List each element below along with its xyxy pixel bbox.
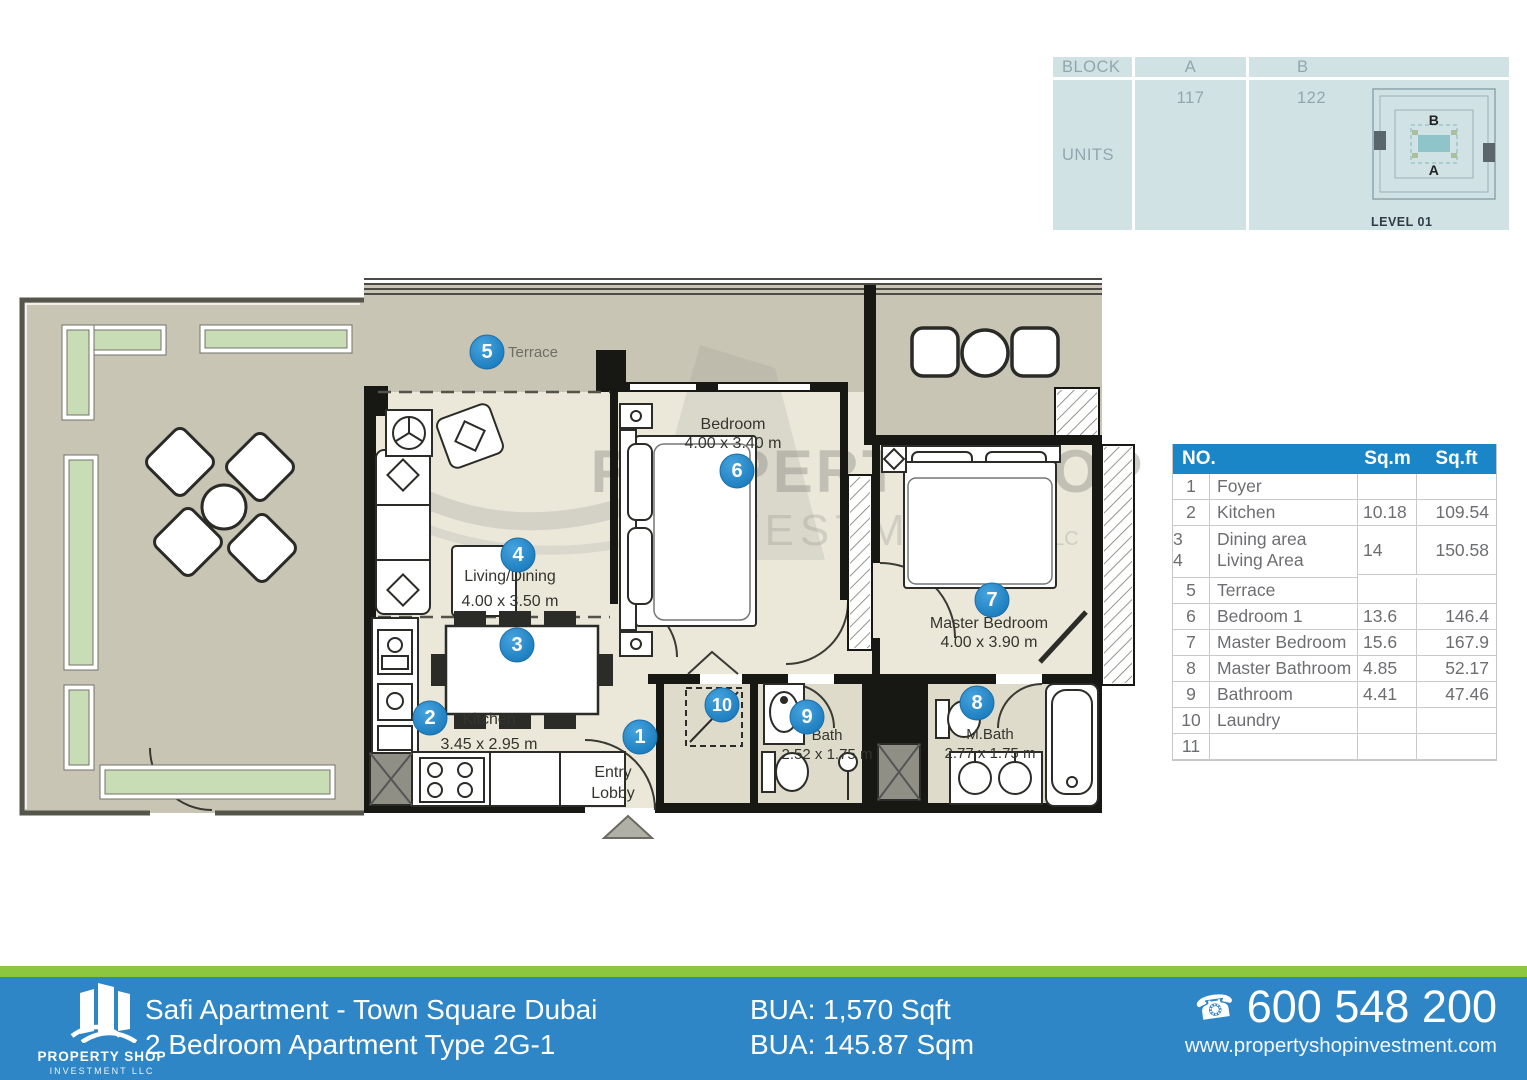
room-label: 4.00 x 3.90 m <box>941 634 1038 651</box>
property-shop-logo-icon <box>54 979 150 1043</box>
bua-sqft: BUA: 1,570 Sqft <box>750 992 974 1027</box>
table-cell <box>1417 578 1496 604</box>
miniplan-unit-left <box>1374 131 1386 150</box>
contact-block: ☎ 600 548 200 www.propertyshopinvestment… <box>1185 981 1497 1058</box>
terrace-table <box>202 485 246 529</box>
area-table-rows: 1Foyer2Kitchen10.18109.5434Dining areaLi… <box>1173 474 1496 760</box>
phone-icon: ☎ <box>1192 985 1237 1028</box>
table-cell: 1 <box>1173 474 1210 500</box>
room-label: 3.45 x 2.95 m <box>441 736 538 753</box>
table-cell: Bedroom 1 <box>1210 604 1358 630</box>
table-cell <box>1417 734 1496 760</box>
room-label: 4.00 x 3.40 m <box>685 435 782 452</box>
table-cell: Foyer <box>1210 474 1358 500</box>
room-label: Terrace <box>508 344 558 361</box>
table-cell: 8 <box>1173 656 1210 682</box>
room-label: Entry <box>594 764 631 781</box>
room-label: Bedroom <box>701 416 766 433</box>
units-table: BLOCK A B UNITS 117 122 B A LEVEL 01 <box>1053 57 1509 230</box>
table-cell: Master Bathroom <box>1210 656 1358 682</box>
corridor-closet <box>848 475 872 650</box>
table-cell: 10 <box>1173 708 1210 734</box>
kitchen-furniture <box>370 612 625 806</box>
table-cell: Terrace <box>1210 578 1358 604</box>
units-col-a: A <box>1135 57 1249 80</box>
table-row: 9Bathroom4.4147.46 <box>1173 682 1496 708</box>
bua-info: BUA: 1,570 Sqft BUA: 145.87 Sqm <box>750 992 974 1062</box>
table-cell: 109.54 <box>1417 500 1496 526</box>
miniplan-pool <box>1418 135 1450 152</box>
level-miniplan: B A <box>1365 83 1505 211</box>
svg-text:8: 8 <box>971 692 982 714</box>
table-cell: 5 <box>1173 578 1210 604</box>
phone-number: ☎ 600 548 200 <box>1185 981 1497 1033</box>
room-marker-9: 9 <box>790 700 824 734</box>
table-cell: 4.85 <box>1358 656 1417 682</box>
table-row: 2Kitchen10.18109.54 <box>1173 500 1496 526</box>
table-cell: 47.46 <box>1417 682 1496 708</box>
units-col-block: BLOCK <box>1053 57 1135 80</box>
table-cell: 15.6 <box>1358 630 1417 656</box>
table-cell: 2 <box>1173 500 1210 526</box>
table-cell: 52.17 <box>1417 656 1496 682</box>
table-cell: 10.18 <box>1358 500 1417 526</box>
table-row: 6Bedroom 113.6146.4 <box>1173 604 1496 630</box>
table-cell: 7 <box>1173 630 1210 656</box>
room-marker-6: 6 <box>720 454 754 488</box>
svg-text:10: 10 <box>712 695 732 715</box>
units-value-a: 117 <box>1135 80 1249 230</box>
room-label: 4.00 x 3.50 m <box>462 593 559 610</box>
master-wardrobe <box>1102 445 1134 685</box>
table-cell <box>1358 734 1417 760</box>
room-label: Master Bedroom <box>930 615 1048 632</box>
table-cell <box>1358 578 1417 604</box>
room-label: Kitchen <box>462 711 515 728</box>
room-marker-2: 2 <box>413 701 447 735</box>
table-cell <box>1358 708 1417 734</box>
room-label: Lobby <box>591 785 635 802</box>
listing-title: Safi Apartment - Town Square Dubai 2 Bed… <box>145 992 597 1062</box>
room-marker-10: 10 <box>705 688 739 722</box>
table-cell <box>1417 708 1496 734</box>
table-cell: Kitchen <box>1210 500 1358 526</box>
alcove-furniture-group <box>912 328 1058 376</box>
room-label: 2.77 x 1.75 m <box>945 745 1036 762</box>
table-row: 5Terrace <box>1173 578 1496 604</box>
svg-text:6: 6 <box>731 460 742 482</box>
table-cell <box>1358 474 1417 500</box>
table-row: 8Master Bathroom4.8552.17 <box>1173 656 1496 682</box>
table-cell: 11 <box>1173 734 1210 760</box>
brand-subname: INVESTMENT LLC <box>32 1066 172 1076</box>
table-cell: 4.41 <box>1358 682 1417 708</box>
table-row: 1Foyer <box>1173 474 1496 500</box>
room-marker-1: 1 <box>623 720 657 754</box>
units-row-label: UNITS <box>1053 80 1135 230</box>
website-link[interactable]: www.propertyshopinvestment.com <box>1185 1034 1497 1058</box>
table-cell: 150.58 <box>1417 526 1496 575</box>
table-cell: 13.6 <box>1358 604 1417 630</box>
table-cell: 9 <box>1173 682 1210 708</box>
svg-text:5: 5 <box>481 341 492 363</box>
listing-title-line1: Safi Apartment - Town Square Dubai <box>145 992 597 1027</box>
header-sqft: Sq.ft <box>1417 448 1496 470</box>
entry-arrow <box>604 816 652 838</box>
table-row: 34Dining areaLiving Area14150.58 <box>1173 526 1496 578</box>
room-marker-3: 3 <box>500 628 534 662</box>
flyer-page: { "units_table": { "col_block": "BLOCK",… <box>0 0 1527 1080</box>
phone-number-text: 600 548 200 <box>1247 981 1497 1033</box>
svg-text:3: 3 <box>511 634 522 656</box>
room-marker-5: 5 <box>470 335 504 369</box>
miniplan-unit-right <box>1483 143 1495 162</box>
table-cell <box>1210 734 1358 760</box>
header-sqm: Sq.m <box>1358 448 1417 470</box>
miniplan-block-a: A <box>1429 162 1440 178</box>
svg-text:2: 2 <box>424 707 435 729</box>
header-no: NO. <box>1173 448 1358 470</box>
footer-green-strip <box>0 966 1527 977</box>
room-label: 2.52 x 1.75 m <box>782 746 873 763</box>
footer-bar: PROPERTY SHOP INVESTMENT LLC Safi Apartm… <box>0 977 1527 1080</box>
table-cell: Bathroom <box>1210 682 1358 708</box>
table-cell: 34 <box>1173 526 1210 578</box>
svg-text:1: 1 <box>634 726 645 748</box>
table-cell <box>1417 474 1496 500</box>
area-table-header: NO. Sq.m Sq.ft <box>1173 444 1496 474</box>
table-cell: 146.4 <box>1417 604 1496 630</box>
table-cell: Dining areaLiving Area <box>1210 526 1358 578</box>
svg-text:7: 7 <box>986 589 997 611</box>
table-cell: 167.9 <box>1417 630 1496 656</box>
table-cell: Laundry <box>1210 708 1358 734</box>
table-cell: Master Bedroom <box>1210 630 1358 656</box>
listing-title-line2: 2 Bedroom Apartment Type 2G-1 <box>145 1027 597 1062</box>
svg-text:9: 9 <box>801 706 812 728</box>
room-marker-4: 4 <box>501 538 535 572</box>
bua-sqm: BUA: 145.87 Sqm <box>750 1027 974 1062</box>
room-marker-7: 7 <box>975 583 1009 617</box>
alcove-closet-hatch <box>1057 390 1097 441</box>
table-row: 7Master Bedroom15.6167.9 <box>1173 630 1496 656</box>
svg-text:4: 4 <box>512 544 524 566</box>
units-col-b: B <box>1249 57 1509 80</box>
room-marker-8: 8 <box>960 686 994 720</box>
table-cell: 6 <box>1173 604 1210 630</box>
level-label: LEVEL 01 <box>1371 215 1432 229</box>
table-row: 10Laundry <box>1173 708 1496 734</box>
table-row: 11 <box>1173 734 1496 760</box>
area-table: NO. Sq.m Sq.ft 1Foyer2Kitchen10.18109.54… <box>1172 444 1497 761</box>
table-cell: 14 <box>1358 526 1417 575</box>
room-label: M.Bath <box>966 726 1014 743</box>
miniplan-block-b: B <box>1429 112 1440 128</box>
